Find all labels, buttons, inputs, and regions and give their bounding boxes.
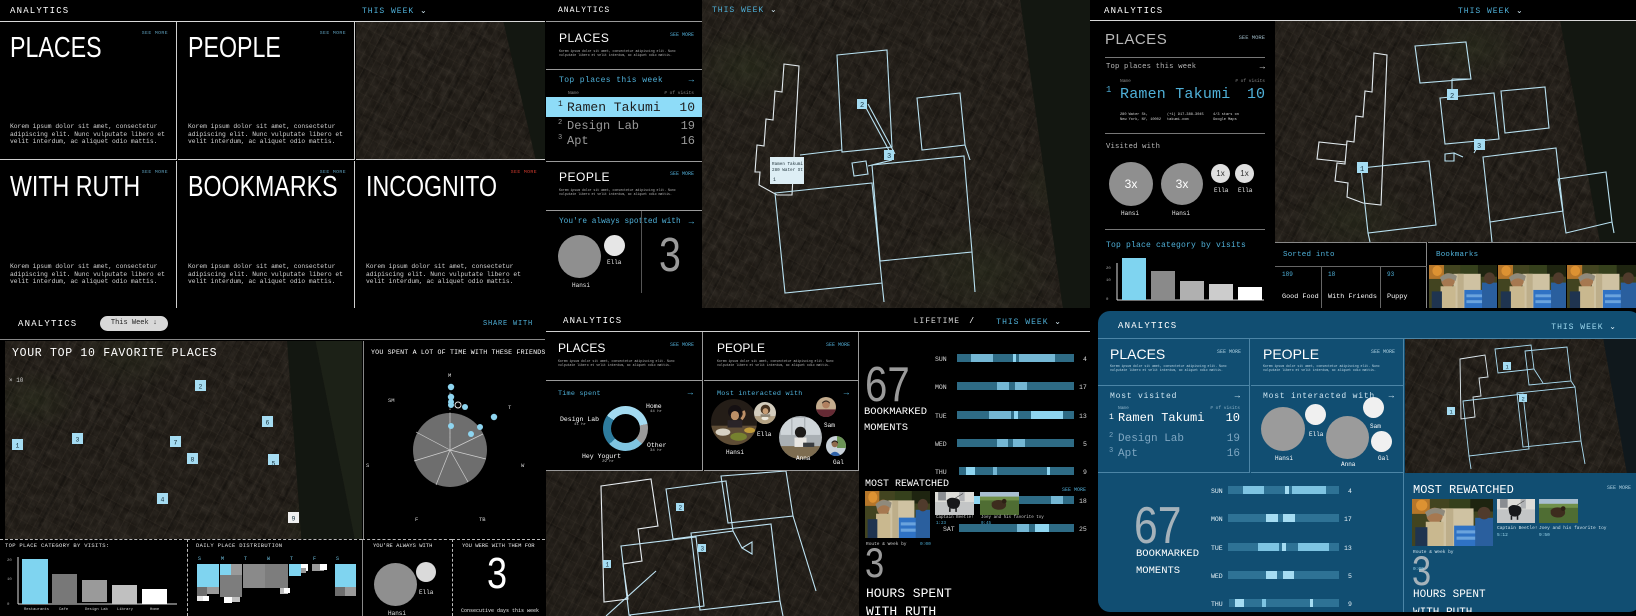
svg-text:13: 13 [1344, 545, 1352, 552]
svg-text:THU: THU [1211, 601, 1223, 608]
svg-text:2: 2 [679, 505, 683, 512]
svg-text:4: 4 [161, 497, 165, 504]
svg-text:SAT: SAT [943, 526, 955, 533]
svg-text:9: 9 [292, 516, 296, 523]
svg-text:2: 2 [1450, 93, 1454, 101]
svg-text:13: 13 [1079, 413, 1087, 420]
svg-text:TB: TB [479, 516, 486, 523]
svg-text:5: 5 [272, 461, 276, 468]
svg-text:F: F [313, 556, 316, 562]
svg-text:Home: Home [150, 608, 160, 612]
svg-text:20: 20 [1106, 267, 1111, 271]
svg-text:3: 3 [887, 153, 891, 161]
svg-text:SUN: SUN [935, 356, 947, 363]
svg-text:3: 3 [701, 546, 705, 553]
svg-text:1: 1 [606, 562, 610, 569]
svg-text:S: S [366, 462, 370, 469]
svg-text:2: 2 [860, 102, 864, 110]
svg-text:Restaurants: Restaurants [24, 607, 49, 612]
svg-text:W: W [521, 462, 525, 469]
svg-text:4: 4 [1083, 356, 1087, 363]
svg-text:9: 9 [1348, 601, 1352, 608]
svg-text:9: 9 [1083, 469, 1087, 476]
svg-text:5: 5 [1083, 441, 1087, 448]
svg-text:4: 4 [1348, 488, 1352, 495]
svg-text:Ramen Takumi: Ramen Takumi [772, 162, 803, 167]
svg-text:3: 3 [76, 437, 80, 444]
svg-text:MON: MON [1211, 516, 1223, 523]
svg-text:1: 1 [1360, 166, 1364, 174]
svg-text:1: 1 [16, 443, 20, 450]
svg-text:1: 1 [773, 177, 776, 183]
svg-text:W: W [267, 556, 270, 562]
svg-text:MON: MON [935, 384, 947, 391]
svg-text:M: M [448, 372, 451, 379]
svg-text:3: 3 [1477, 143, 1481, 151]
svg-text:T: T [508, 404, 512, 411]
svg-text:8: 8 [191, 457, 195, 464]
svg-text:F: F [415, 516, 418, 523]
svg-text:17: 17 [1079, 384, 1087, 391]
svg-text:17: 17 [1344, 516, 1352, 523]
svg-text:SM: SM [388, 397, 395, 404]
svg-text:TUE: TUE [1211, 545, 1223, 552]
svg-text:T: T [290, 556, 293, 562]
svg-text:0: 0 [7, 603, 10, 607]
svg-text:0: 0 [1106, 298, 1109, 302]
svg-text:2: 2 [1522, 396, 1525, 403]
svg-text:S: S [198, 556, 201, 562]
svg-text:25: 25 [1079, 526, 1087, 533]
svg-text:Library: Library [117, 607, 134, 612]
svg-text:2: 2 [199, 384, 203, 391]
svg-text:7: 7 [174, 440, 178, 447]
svg-text:280 Water St: 280 Water St [772, 168, 803, 173]
svg-text:TUE: TUE [935, 413, 947, 420]
svg-text:WED: WED [935, 441, 947, 448]
svg-text:10: 10 [7, 578, 12, 582]
svg-text:18: 18 [1079, 498, 1087, 505]
svg-text:20: 20 [7, 559, 12, 563]
svg-text:Design Lab: Design Lab [85, 607, 109, 612]
svg-text:5: 5 [1348, 573, 1352, 580]
svg-text:M: M [221, 556, 224, 562]
svg-text:T: T [244, 556, 247, 562]
svg-text:S: S [336, 556, 339, 562]
svg-text:6: 6 [266, 420, 270, 427]
svg-text:SUN: SUN [1211, 488, 1223, 495]
svg-text:10: 10 [1106, 279, 1111, 283]
svg-text:THU: THU [935, 469, 947, 476]
svg-text:Cafe: Cafe [59, 607, 69, 612]
svg-text:WED: WED [1211, 573, 1223, 580]
